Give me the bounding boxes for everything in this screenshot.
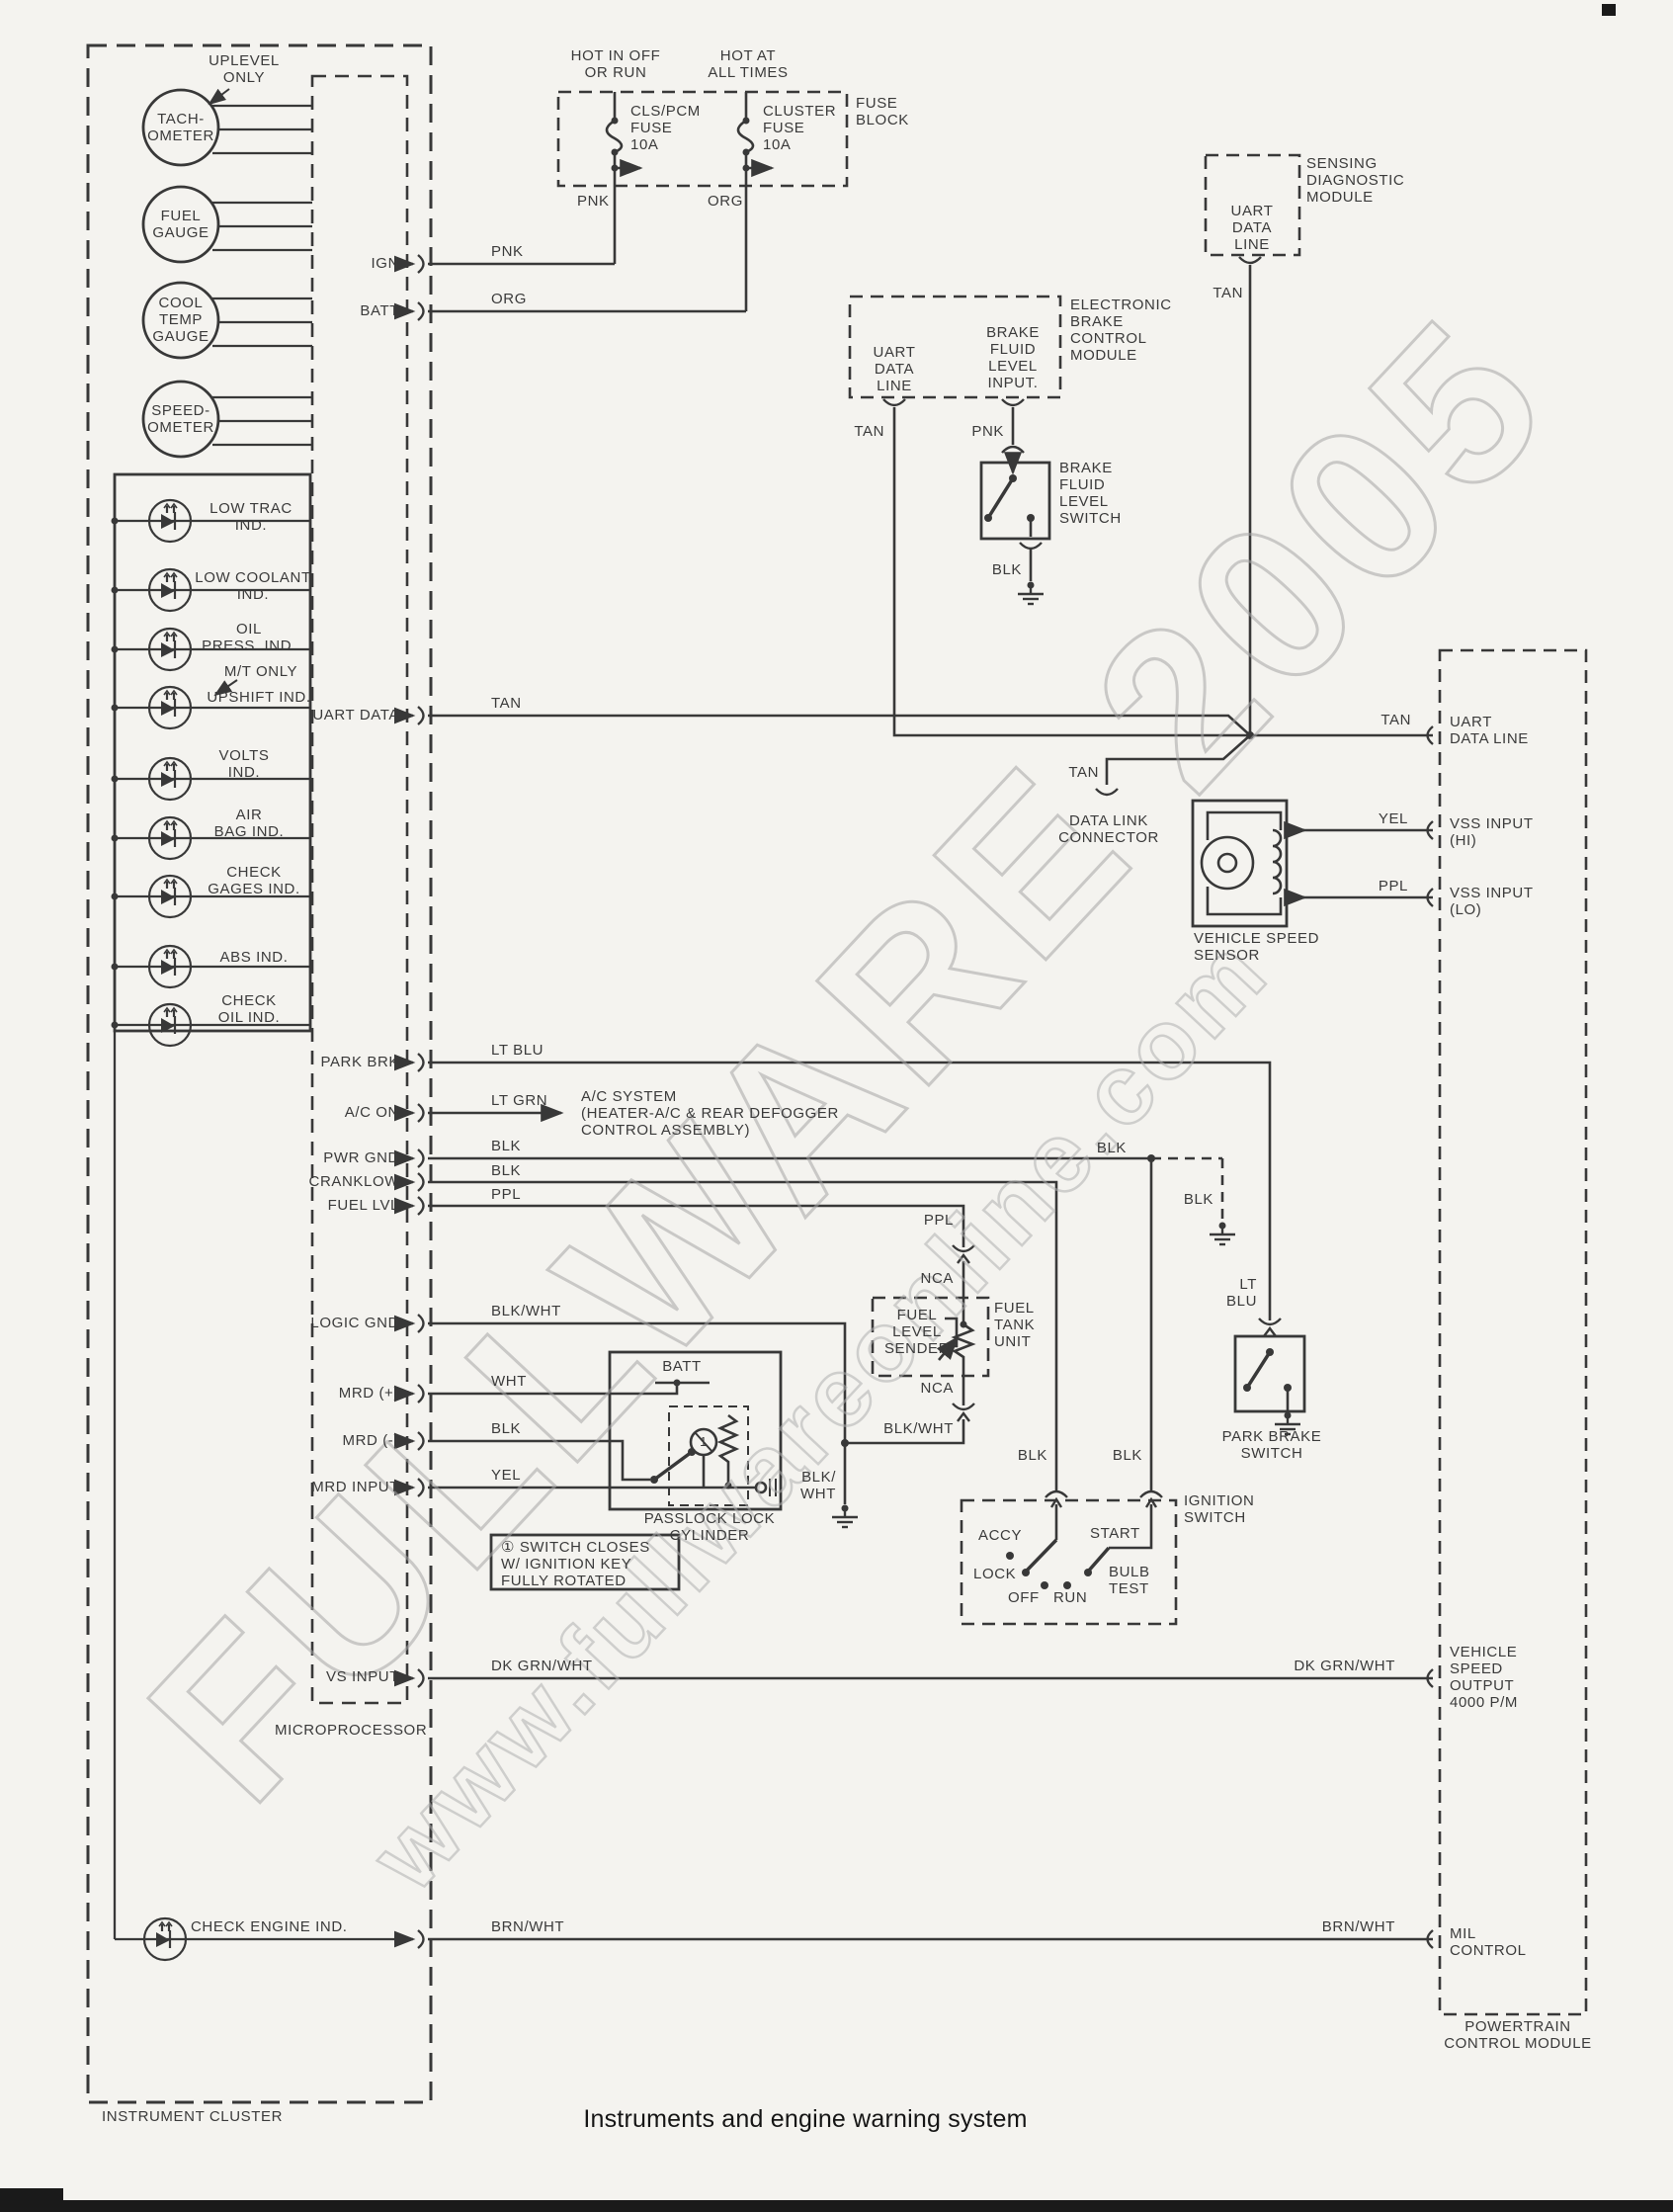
- fuse-block: FUSE BLOCK: [856, 95, 909, 128]
- w-blkwht-logic: BLK/WHT: [491, 1303, 561, 1319]
- pin-logicgnd: LOGIC GND: [310, 1315, 399, 1331]
- w-blk-junction: BLK: [1097, 1140, 1127, 1156]
- w-blk-ign2: BLK: [1113, 1447, 1142, 1464]
- fuse-hot2: HOT AT ALL TIMES: [708, 47, 788, 81]
- gauge-cool: COOL TEMP GAUGE: [152, 295, 209, 345]
- ind-abs: ABS IND.: [220, 949, 289, 966]
- fuse1: CLS/PCM FUSE 10A: [630, 103, 701, 153]
- ign-bulb: BULB TEST: [1109, 1564, 1150, 1597]
- ign-lock: LOCK: [973, 1566, 1016, 1582]
- w-nca1: NCA: [921, 1270, 954, 1287]
- ind-checkoil: CHECK OIL IND.: [218, 992, 281, 1026]
- w-yel-vss: YEL: [1379, 810, 1408, 827]
- labels-layer: Instruments and engine warning systemFUL…: [0, 0, 1673, 2212]
- pin-acon: A/C ON: [345, 1104, 399, 1121]
- pin-uart: UART DATA: [312, 707, 399, 723]
- pcm-vss-lo: VSS INPUT (LO): [1450, 885, 1534, 918]
- batt-label: BATT: [662, 1358, 702, 1375]
- bfl-label: BRAKE FLUID LEVEL SWITCH: [1059, 460, 1122, 527]
- w-blk-pwr: BLK: [491, 1138, 521, 1154]
- pin-mrdin: MRD INPUT: [311, 1479, 399, 1495]
- vss-label: VEHICLE SPEED SENSOR: [1194, 930, 1319, 964]
- pcm-mil: MIL CONTROL: [1450, 1925, 1527, 1959]
- w-tan-right: TAN: [1380, 712, 1411, 728]
- w-blkwht3: BLK/ WHT: [800, 1469, 836, 1502]
- passlock-label: PASSLOCK LOCK CYLINDER: [644, 1510, 776, 1544]
- w-org1: ORG: [491, 291, 527, 307]
- ind-gages: CHECK GAGES IND.: [208, 864, 300, 897]
- dlc-label: DATA LINK CONNECTOR: [1058, 812, 1159, 846]
- gauge-speed: SPEED- OMETER: [147, 402, 214, 436]
- w-nca2: NCA: [921, 1380, 954, 1397]
- w-dkgrn-r: DK GRN/WHT: [1294, 1658, 1395, 1674]
- w-brnwht-l: BRN/WHT: [491, 1918, 564, 1935]
- pcm-vss-hi: VSS INPUT (HI): [1450, 815, 1534, 849]
- ftu-label: FUEL TANK UNIT: [994, 1300, 1035, 1350]
- ign-start: START: [1090, 1525, 1140, 1542]
- w-tan-dlc: TAN: [1068, 764, 1099, 781]
- gauge-tach: TACH- OMETER: [147, 111, 214, 144]
- pin-cranklow: CRANKLOW: [309, 1173, 399, 1190]
- w-dkgrn-l: DK GRN/WHT: [491, 1658, 593, 1674]
- ign-run: RUN: [1053, 1589, 1087, 1606]
- w-tan-sdm: TAN: [1213, 285, 1243, 301]
- w-blk-ign1: BLK: [1018, 1447, 1047, 1464]
- pbs-label: PARK BRAKE SWITCH: [1222, 1428, 1322, 1462]
- w-pnk-fuse: PNK: [577, 193, 610, 210]
- ind-upshift: UPSHIFT IND.: [207, 689, 310, 706]
- fuse-hot1: HOT IN OFF OR RUN: [571, 47, 661, 81]
- ign-label: IGNITION SWITCH: [1184, 1492, 1254, 1526]
- w-org-fuse: ORG: [708, 193, 743, 210]
- w-ppl-fuel: PPL: [491, 1186, 521, 1203]
- pin-fuellvl: FUEL LVL: [328, 1197, 399, 1214]
- w-pnk1: PNK: [491, 243, 524, 260]
- w-ltblu: LT BLU: [491, 1042, 544, 1059]
- pcm-vso: VEHICLE SPEED OUTPUT 4000 P/M: [1450, 1644, 1518, 1711]
- sdm-label: SENSING DIAGNOSTIC MODULE: [1306, 155, 1404, 206]
- sdm-pin: UART DATA LINE: [1231, 203, 1274, 253]
- w-blk-mrd: BLK: [491, 1420, 521, 1437]
- wiring-diagram-page: Instruments and engine warning systemFUL…: [0, 0, 1673, 2212]
- w-blk-gnd-dash: BLK: [1184, 1191, 1213, 1208]
- w-tan-uart: TAN: [491, 695, 522, 712]
- micro-label: MICROPROCESSOR: [275, 1722, 427, 1739]
- w-brnwht-r: BRN/WHT: [1322, 1918, 1395, 1935]
- w-yel-mrd: YEL: [491, 1467, 521, 1484]
- pin-vsinput: VS INPUT: [326, 1668, 399, 1685]
- w-wht: WHT: [491, 1373, 527, 1390]
- passlock-key-num: 1: [700, 1435, 708, 1449]
- ftu-pin: FUEL LEVEL SENDER: [884, 1307, 950, 1357]
- caption: Instruments and engine warning system: [583, 2105, 1027, 2133]
- ac-label: A/C SYSTEM (HEATER-A/C & REAR DEFOGGER C…: [581, 1088, 839, 1139]
- ign-off: OFF: [1008, 1589, 1040, 1606]
- ign-accy: ACCY: [978, 1527, 1022, 1544]
- pin-parkbrk: PARK BRK: [320, 1054, 399, 1070]
- ind-oil: OIL PRESS. IND.: [202, 621, 296, 654]
- ind-checkeng: CHECK ENGINE IND.: [191, 1918, 348, 1935]
- w-blk-crank: BLK: [491, 1162, 521, 1179]
- ebcm-pin2: BRAKE FLUID LEVEL INPUT.: [986, 324, 1040, 391]
- w-ppl2: PPL: [924, 1212, 954, 1229]
- ebcm-label: ELECTRONIC BRAKE CONTROL MODULE: [1070, 297, 1172, 364]
- pin-batt: BATT: [360, 302, 399, 319]
- ind-lowcool: LOW COOLANT IND.: [195, 569, 310, 603]
- w-ppl-vss: PPL: [1379, 878, 1408, 894]
- w-ltgrn: LT GRN: [491, 1092, 547, 1109]
- pin-mrdp: MRD (+): [339, 1385, 399, 1402]
- uplevel: UPLEVEL ONLY: [209, 52, 280, 86]
- mt-only: M/T ONLY: [224, 663, 297, 680]
- pin-mrdm: MRD (-): [342, 1432, 399, 1449]
- pcm-uart: UART DATA LINE: [1450, 714, 1529, 747]
- ind-airbag: AIR BAG IND.: [214, 807, 285, 840]
- note-text: ① SWITCH CLOSES W/ IGNITION KEY FULLY RO…: [501, 1539, 650, 1589]
- cluster-label: INSTRUMENT CLUSTER: [102, 2108, 283, 2125]
- pin-ign: IGN: [372, 255, 399, 272]
- ebcm-pin1: UART DATA LINE: [874, 344, 916, 394]
- fuse2: CLUSTER FUSE 10A: [763, 103, 836, 153]
- w-ltblu2: LT BLU: [1226, 1276, 1257, 1310]
- w-blk-bfl: BLK: [992, 561, 1022, 578]
- gauge-fuel: FUEL GAUGE: [152, 208, 209, 241]
- w-blkwht2: BLK/WHT: [883, 1420, 954, 1437]
- ind-volts: VOLTS IND.: [218, 747, 269, 781]
- w-tan-ebcm: TAN: [854, 423, 884, 440]
- pcm-label: POWERTRAIN CONTROL MODULE: [1444, 2018, 1592, 2052]
- ind-lowtrac: LOW TRAC IND.: [209, 500, 293, 534]
- pin-pwrgnd: PWR GND: [323, 1149, 399, 1166]
- w-pnk-ebcm: PNK: [971, 423, 1004, 440]
